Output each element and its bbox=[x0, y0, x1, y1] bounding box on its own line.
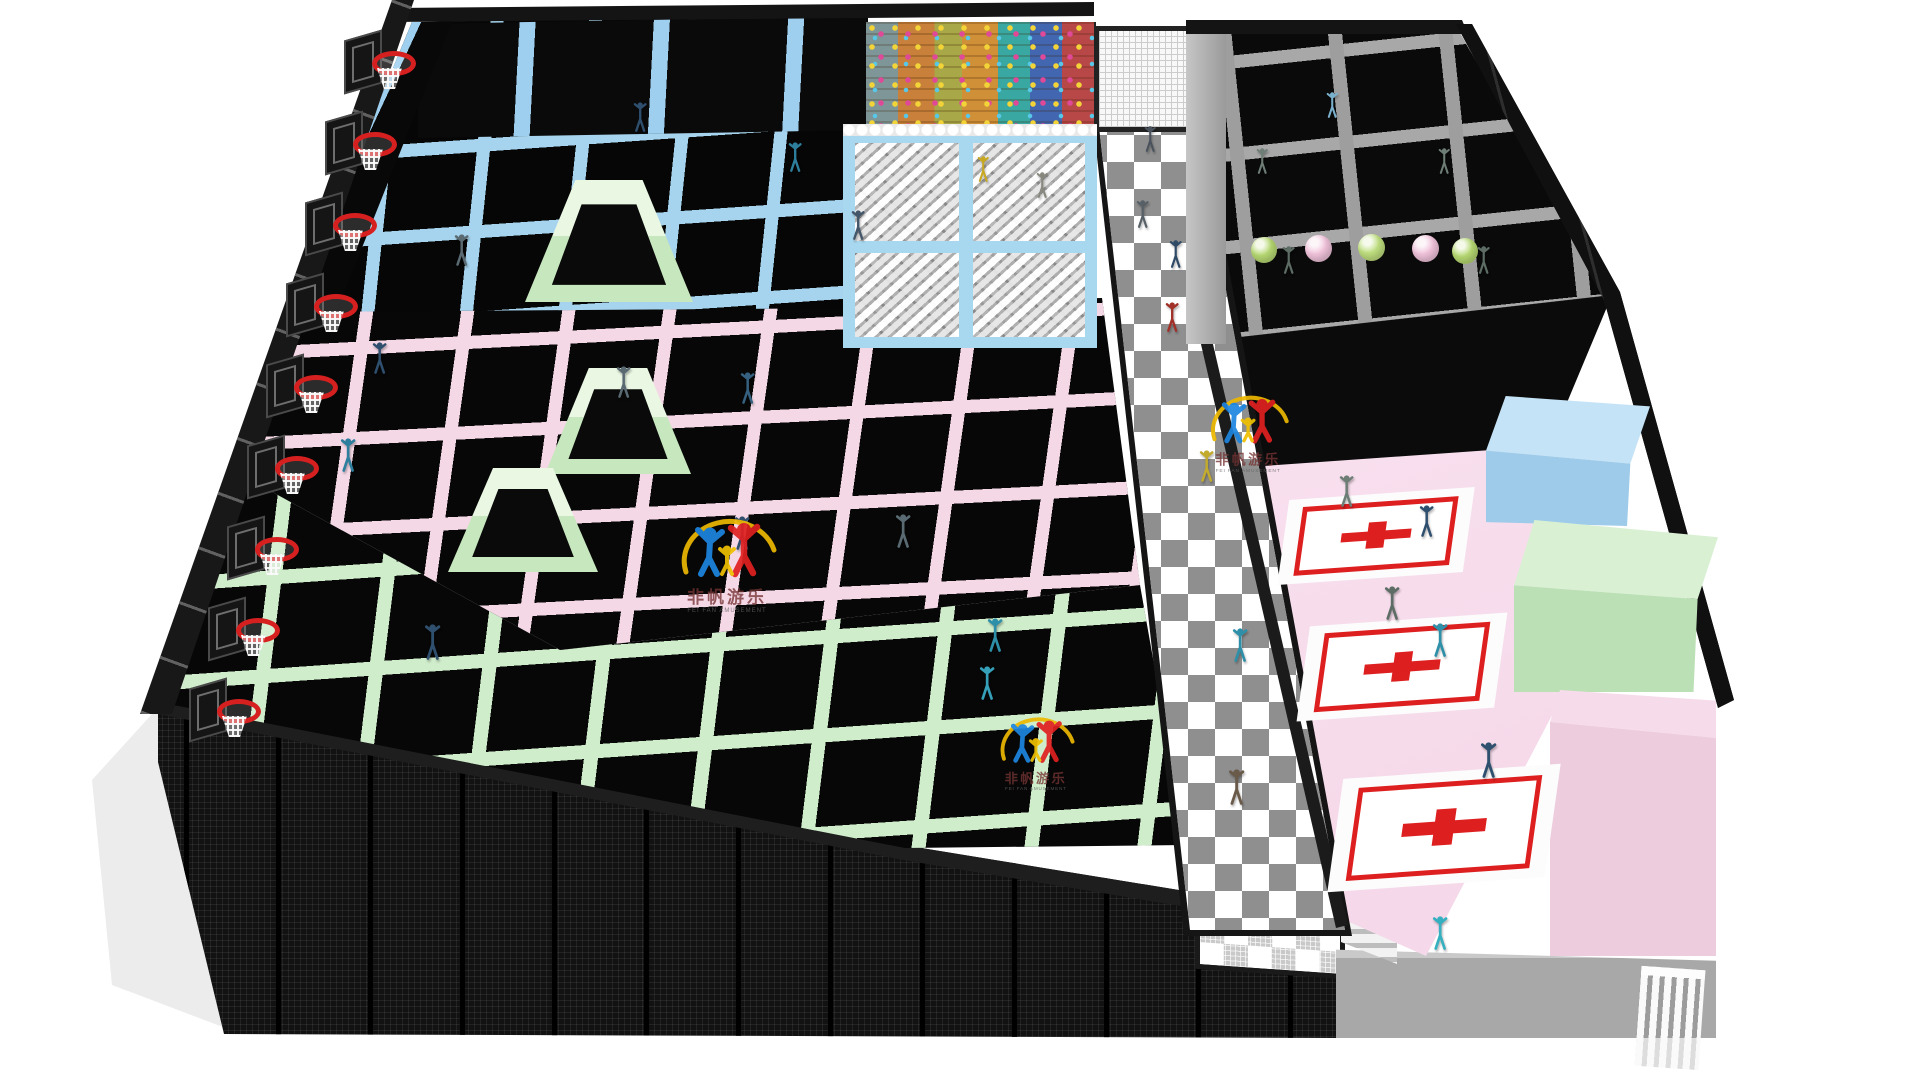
person-figure bbox=[1144, 126, 1156, 152]
dodgeball-mat bbox=[1327, 764, 1560, 893]
hoop-net bbox=[241, 635, 266, 656]
mat-red-border bbox=[1346, 775, 1542, 881]
person-figure bbox=[1169, 240, 1182, 268]
person-figure bbox=[788, 142, 802, 172]
foam-block-pink bbox=[1550, 690, 1716, 956]
hoop-net bbox=[358, 149, 383, 170]
basketball-hoop bbox=[247, 440, 319, 512]
brand-watermark: 非帆游乐 FEI FAN AMUSEMENT bbox=[1203, 390, 1293, 474]
wedge-trampoline-bed bbox=[552, 204, 666, 285]
person-figure bbox=[1432, 916, 1448, 950]
brand-name-cn: 非帆游乐 bbox=[1203, 453, 1293, 468]
climbing-wall bbox=[866, 22, 1094, 134]
person-figure bbox=[1326, 92, 1338, 118]
foam-block-blue bbox=[1486, 396, 1650, 526]
trampoline-park-scene: 非帆游乐 FEI FAN AMUSEMENT 非帆游乐 FEI FAN AMUS… bbox=[0, 0, 1920, 1079]
brand-name-cn: 非帆游乐 bbox=[672, 589, 782, 608]
person-figure bbox=[616, 366, 631, 398]
person-figure bbox=[454, 234, 469, 266]
exercise-ball bbox=[1305, 235, 1332, 262]
basketball-hoop bbox=[325, 116, 397, 188]
person-figure bbox=[1438, 148, 1450, 174]
exercise-ball bbox=[1412, 235, 1439, 262]
brand-name-en: FEI FAN AMUSEMENT bbox=[1203, 468, 1293, 474]
person-figure bbox=[851, 210, 865, 240]
person-figure bbox=[1228, 769, 1245, 805]
basketball-hoop bbox=[266, 359, 338, 431]
hoop-net bbox=[299, 392, 324, 413]
white-picket-gate bbox=[1635, 966, 1706, 1070]
brand-name-en: FEI FAN AMUSEMENT bbox=[993, 787, 1079, 793]
person-figure bbox=[1282, 246, 1295, 274]
person-figure bbox=[372, 342, 387, 374]
gray-wall-pillar bbox=[1186, 26, 1226, 344]
foam-block-green bbox=[1514, 520, 1718, 692]
person-figure bbox=[895, 514, 911, 548]
foam-pit bbox=[843, 133, 1097, 348]
brand-name-en: FEI FAN AMUSEMENT bbox=[672, 608, 782, 615]
person-figure bbox=[1432, 623, 1448, 657]
brand-watermark: 非帆游乐 FEI FAN AMUSEMENT bbox=[993, 712, 1079, 792]
person-figure bbox=[979, 666, 995, 700]
person-figure bbox=[1384, 586, 1400, 620]
exercise-ball bbox=[1358, 234, 1385, 261]
person-figure bbox=[977, 156, 989, 182]
hoop-net bbox=[377, 68, 402, 89]
person-figure bbox=[1480, 742, 1497, 778]
basketball-hoop bbox=[344, 35, 416, 107]
basketball-hoop bbox=[305, 197, 377, 269]
foam-pit-cell bbox=[855, 253, 959, 337]
exercise-ball bbox=[1251, 237, 1277, 263]
hoop-net bbox=[319, 311, 344, 332]
foam-pit-cell bbox=[973, 143, 1085, 241]
brand-watermark: 非帆游乐 FEI FAN AMUSEMENT bbox=[672, 512, 782, 615]
brand-logo-icon bbox=[672, 512, 782, 584]
foam-pit-cell bbox=[973, 253, 1085, 337]
person-figure bbox=[1419, 505, 1434, 537]
hoop-net bbox=[260, 554, 285, 575]
person-figure bbox=[340, 438, 356, 472]
hoop-net bbox=[338, 230, 363, 251]
exercise-ball bbox=[1452, 238, 1478, 264]
wedge-trampoline-bed bbox=[568, 389, 667, 459]
brand-logo-icon bbox=[1203, 390, 1293, 449]
wedge-trampoline-bed bbox=[472, 489, 574, 558]
hoop-net bbox=[280, 473, 305, 494]
person-figure bbox=[1256, 148, 1268, 174]
basketball-hoop bbox=[227, 521, 299, 593]
person-figure bbox=[1477, 246, 1490, 274]
person-figure bbox=[1036, 172, 1048, 198]
brand-name-cn: 非帆游乐 bbox=[993, 772, 1079, 787]
person-figure bbox=[1165, 302, 1179, 332]
basketball-hoop bbox=[189, 683, 261, 755]
basketball-hoop bbox=[208, 602, 280, 674]
mat-red-border bbox=[1314, 622, 1491, 712]
dodgeball-mat bbox=[1297, 613, 1508, 722]
person-figure bbox=[1136, 200, 1149, 228]
dodgeball-mat bbox=[1277, 487, 1474, 585]
hoop-net bbox=[222, 716, 247, 737]
person-figure bbox=[424, 624, 441, 660]
person-figure bbox=[1232, 628, 1248, 662]
person-figure bbox=[1339, 475, 1354, 507]
mesh-safety-gate bbox=[1094, 26, 1200, 132]
basketball-hoop bbox=[286, 278, 358, 350]
person-figure bbox=[987, 618, 1003, 652]
person-figure bbox=[633, 102, 647, 132]
brand-logo-icon bbox=[993, 712, 1079, 768]
person-figure bbox=[740, 372, 755, 404]
foam-pit-cell bbox=[855, 143, 959, 241]
